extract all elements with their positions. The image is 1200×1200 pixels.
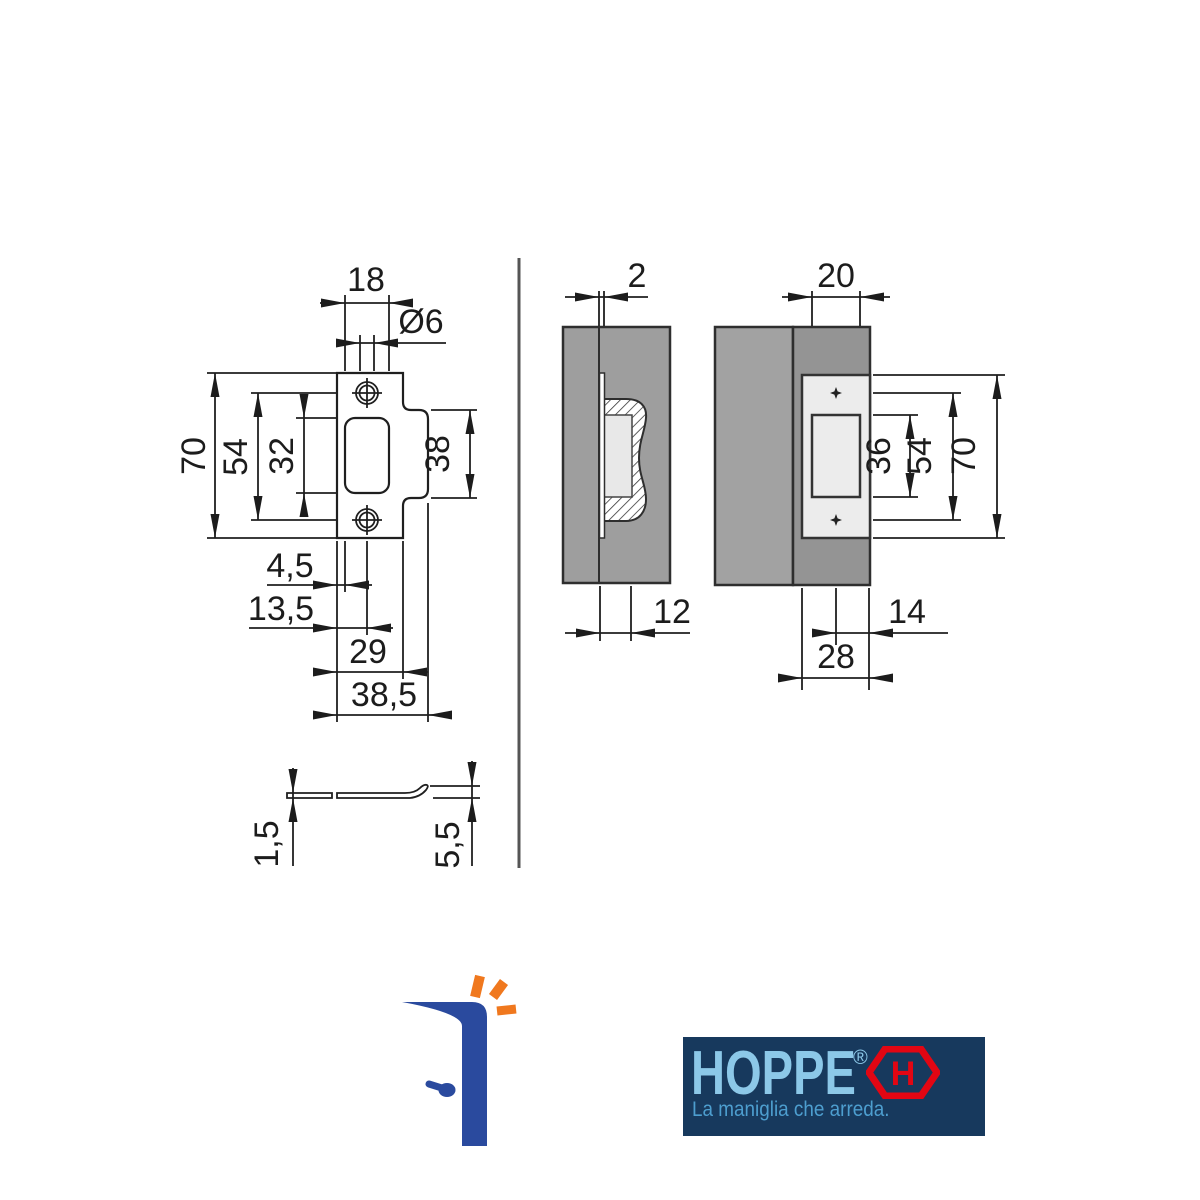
dim-front-plate-width: 29 — [313, 633, 428, 677]
dim-front-hole-diameter: Ø6 — [336, 303, 446, 371]
dim-front-offset-135: 13,5 — [248, 590, 393, 633]
section-view: 2 12 — [563, 257, 691, 641]
dim-front-opening-height: 32 — [263, 394, 336, 517]
side-view: 20 36 54 70 — [715, 257, 1005, 690]
svg-text:18: 18 — [347, 261, 385, 299]
door-snap-icon — [395, 965, 525, 1155]
svg-text:54: 54 — [901, 437, 939, 475]
svg-text:28: 28 — [817, 638, 855, 676]
svg-text:13,5: 13,5 — [248, 590, 314, 628]
svg-text:38,5: 38,5 — [351, 676, 417, 714]
door-frame-left — [715, 327, 793, 585]
profile-view: 1,5 5,5 — [248, 761, 480, 869]
screw-hole-top — [352, 378, 382, 408]
door-handle-knob — [439, 1083, 456, 1097]
hoppe-hexagon-icon: H — [866, 1046, 940, 1099]
dim-side-offset-14: 14 — [812, 593, 948, 638]
svg-text:14: 14 — [888, 593, 926, 631]
latch-recess-box — [604, 415, 632, 497]
dim-section-thickness: 2 — [565, 257, 648, 326]
svg-text:4,5: 4,5 — [266, 547, 313, 585]
svg-text:29: 29 — [349, 633, 387, 671]
front-view: 18 Ø6 70 54 — [175, 261, 477, 722]
svg-text:70: 70 — [945, 437, 983, 475]
svg-text:12: 12 — [653, 593, 691, 631]
hexagon-letter: H — [891, 1055, 916, 1093]
svg-text:5,5: 5,5 — [429, 821, 467, 868]
svg-text:38: 38 — [419, 435, 457, 473]
snap-ray-diagonal — [493, 982, 504, 997]
dim-front-offset-45: 4,5 — [266, 547, 372, 590]
snap-ray-horizontal — [497, 1009, 516, 1011]
svg-text:54: 54 — [217, 438, 255, 476]
svg-text:20: 20 — [817, 257, 855, 295]
door-shape — [402, 1002, 487, 1146]
hoppe-wordmark: HOPPE — [691, 1043, 856, 1105]
svg-text:70: 70 — [175, 437, 213, 475]
strike-plate-outline — [337, 373, 428, 538]
dim-side-top-width: 20 — [782, 257, 890, 326]
hoppe-tagline: La maniglia che arreda. — [692, 1098, 890, 1122]
dim-profile-lip-height: 5,5 — [429, 761, 480, 869]
strike-plate-edge — [600, 373, 605, 538]
hoppe-logo: HOPPE ® H La maniglia che arreda. — [683, 1037, 985, 1136]
dim-front-height: 70 — [175, 373, 336, 538]
svg-text:32: 32 — [263, 437, 301, 475]
dim-section-depth: 12 — [565, 586, 691, 641]
snap-ray-vertical — [475, 976, 480, 997]
svg-text:2: 2 — [628, 257, 647, 295]
latch-opening — [345, 418, 389, 493]
svg-text:Ø6: Ø6 — [398, 303, 443, 341]
screw-hole-bottom — [352, 505, 382, 535]
svg-text:1,5: 1,5 — [248, 820, 286, 867]
svg-text:36: 36 — [860, 437, 898, 475]
technical-drawing: 18 Ø6 70 54 — [0, 0, 1200, 1200]
dim-front-total-width: 38,5 — [313, 676, 452, 720]
plate-profile-lip-segment — [337, 785, 428, 798]
latch-opening-side — [812, 415, 860, 497]
dim-side-plate-width: 28 — [778, 638, 893, 683]
dim-profile-thickness: 1,5 — [248, 768, 298, 868]
